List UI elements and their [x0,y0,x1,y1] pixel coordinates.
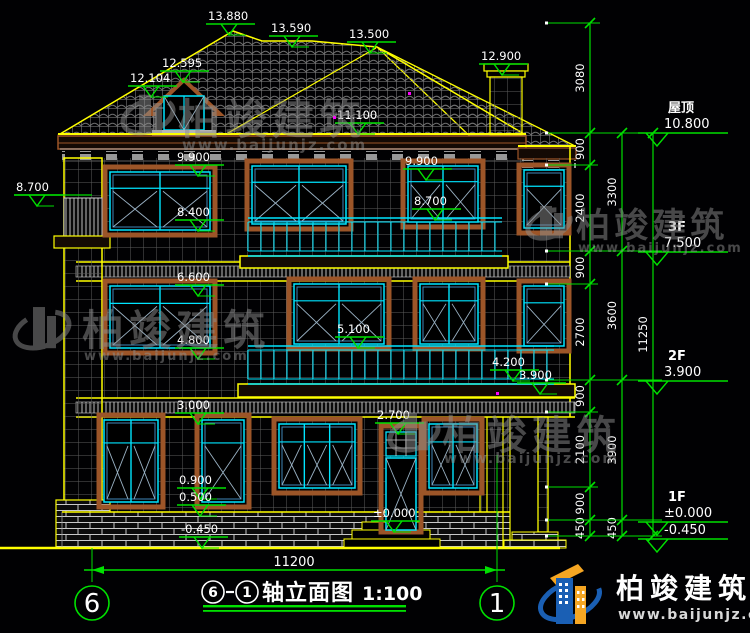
title-underline [203,605,406,607]
cad-canvas: 13.88013.59013.50012.59512.10412.90011.1… [0,0,750,633]
level-value: 8.700 [16,180,49,194]
level-value: 13.880 [208,9,248,23]
level-value: 3.000 [177,398,210,412]
window [415,279,483,349]
watermark-url: www.baijunjz.com [444,451,619,467]
watermark-brand-char: 柏 [576,206,610,246]
watermark-brand-char: 筑 [690,206,724,246]
watermark-brand-char: 建 [176,306,218,355]
balcony-slab-3f [240,256,508,268]
level-value: 12.104 [130,71,170,85]
window-frame [524,286,564,346]
window [105,167,215,235]
watermark-url: www.baijunjz.com [182,136,367,154]
watermark-brand-char: 竣 [614,206,648,246]
level-value: 0.900 [179,473,212,487]
dim-value: 3600 [605,301,619,330]
level-value: 13.590 [271,21,311,35]
level-value: 9.900 [405,154,438,168]
level-value: 0.500 [179,490,212,504]
watermark-url: www.baijunjz.com [578,241,743,256]
storey-elevation: 10.800 [664,117,710,132]
level-value: 4.200 [492,355,525,369]
point-node [545,22,548,25]
elevation-drawing: 13.88013.59013.50012.59512.10412.90011.1… [0,0,750,633]
point-node [545,486,548,489]
dim-value: 11250 [636,316,650,353]
dim-value: 900 [573,138,587,160]
storey-name: 1F [668,490,686,505]
dim-value: 900 [573,257,587,279]
watermark-brand-char: 建 [652,206,686,246]
watermark-icon-tower [540,206,552,239]
point-node [545,250,548,253]
level-value: -0.450 [181,522,218,536]
watermark-brand-char: 柏 [82,306,124,355]
point-node [545,379,548,382]
level-value: 12.900 [481,49,521,63]
watermark-url: www.baijunjz.com [84,349,249,364]
title-axis-number: 1 [242,585,252,601]
point-node [545,283,548,286]
dim-value: 11200 [273,555,314,570]
storey-elevation: -0.450 [664,523,706,538]
level-value: 13.500 [349,27,389,41]
watermark-icon-tower [554,213,563,238]
level-value: 12.595 [162,56,202,70]
title-scale: 1:100 [362,583,422,605]
point-node [545,132,548,135]
watermark-icon-tower [47,316,56,348]
watermark-icon-tower [33,307,45,349]
side-ledge [54,236,110,248]
storey-elevation: ±0.000 [664,506,712,521]
window [274,419,360,493]
level-value: 6.600 [177,270,210,284]
point-node [545,535,548,538]
level-value: 8.700 [414,194,447,208]
title-axis-number: 6 [208,585,218,601]
level-value: ±0.000 [373,506,416,520]
title-underline [203,610,406,612]
brand-logo: 柏竣建筑 www.baijunjz.com [535,564,750,627]
point-node [545,519,548,522]
balcony-slab-2f [238,384,575,397]
node-accent [496,392,499,395]
watermark-icon-tower [419,422,428,451]
logo-brand: 柏竣建筑 [616,572,750,605]
window [99,415,163,507]
node-accent [408,92,411,95]
storey-name: 2F [668,349,686,364]
side-parapet [64,198,104,236]
dim-value: 3080 [573,63,587,92]
watermark-icon-tower [153,103,162,133]
dim-value: 900 [573,493,587,515]
watermark-brand-char: 筑 [223,306,265,355]
watermark-icon-tower [139,95,151,134]
storey-elevation: 3.900 [664,365,701,380]
window [289,279,389,349]
point-node [545,164,548,167]
axis-number: 6 [84,589,101,619]
dim-value: 3300 [605,177,619,206]
window-frame [279,424,355,488]
logo-url: www.baijunjz.com [618,607,750,623]
plinth [62,512,510,548]
title-name: 轴立面图 [262,580,354,606]
dim-value: 900 [573,385,587,407]
watermark-icon-tower [405,414,417,452]
level-value: 8.400 [177,205,210,219]
window [519,281,569,351]
storey-name: 屋顶 [668,101,694,116]
axis-number: 1 [489,589,506,619]
watermark-brand-char: 竣 [129,306,171,355]
level-value: 5.100 [337,322,370,336]
dim-value: 2700 [573,317,587,346]
